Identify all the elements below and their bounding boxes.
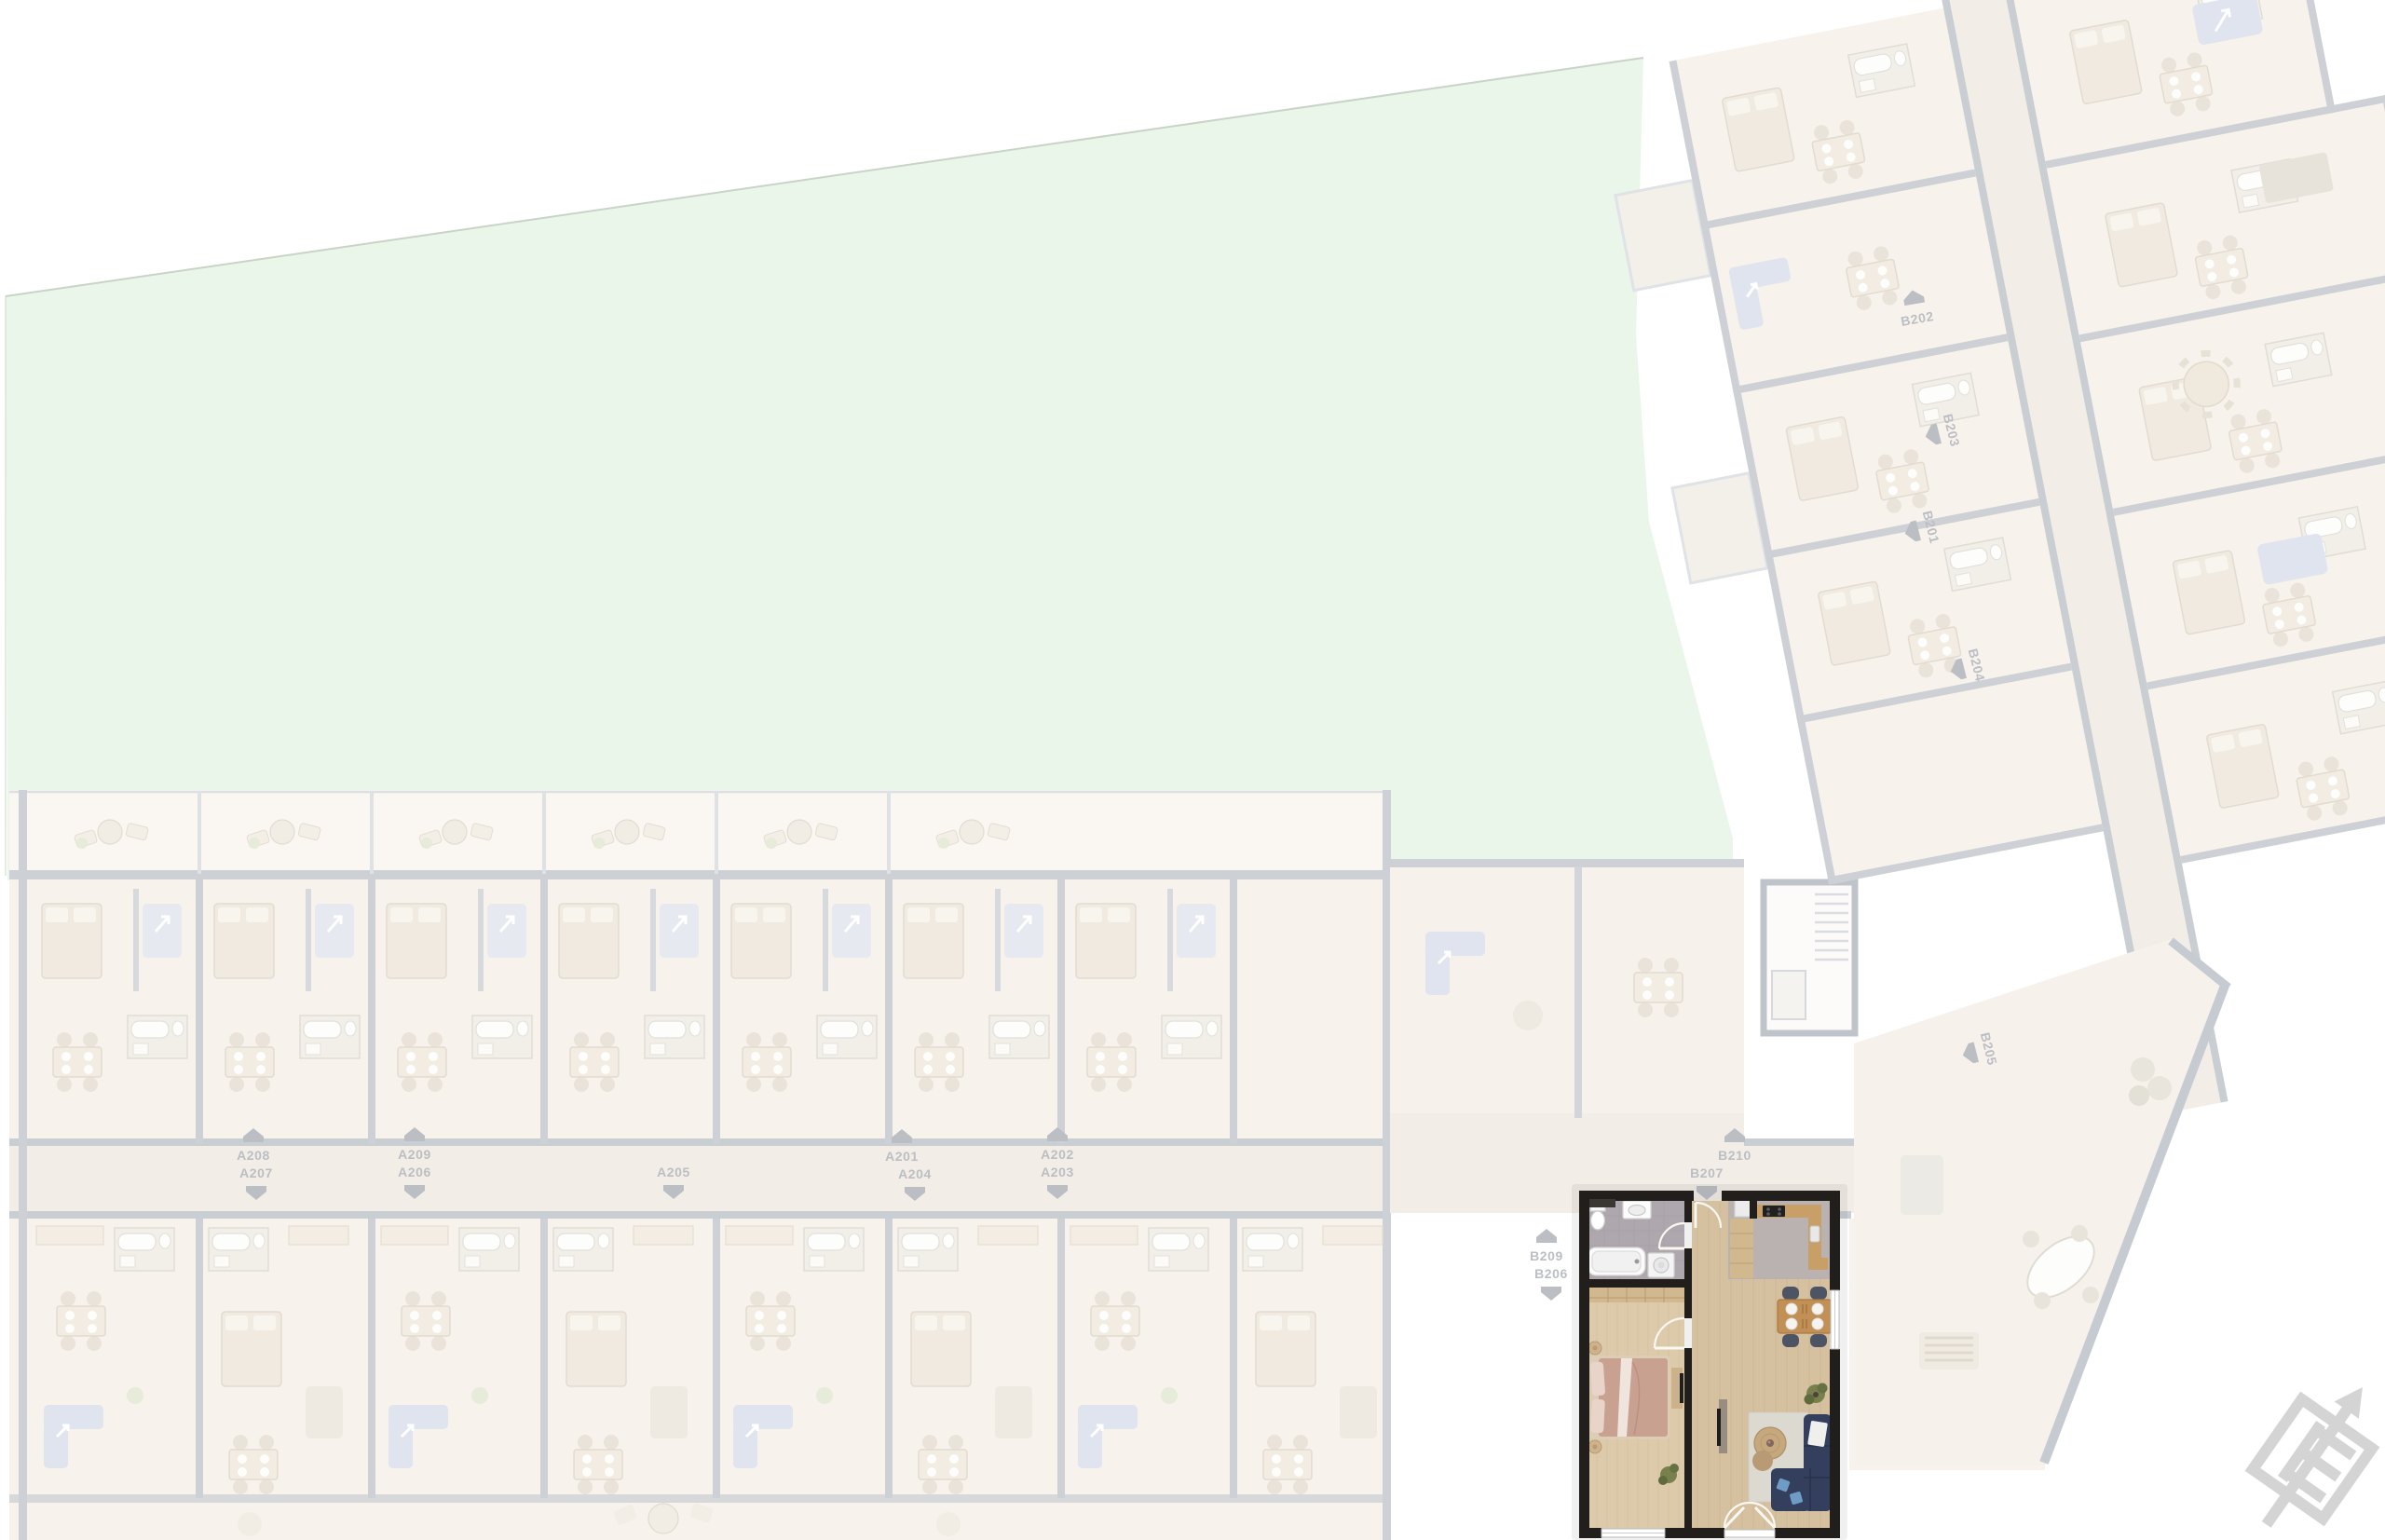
svg-text:A201: A201 (885, 1149, 919, 1164)
svg-text:A207: A207 (239, 1165, 273, 1180)
svg-text:A202: A202 (1041, 1147, 1074, 1162)
svg-text:B207: B207 (1690, 1165, 1724, 1180)
svg-text:A209: A209 (398, 1147, 431, 1162)
svg-text:A208: A208 (237, 1148, 270, 1163)
svg-text:A203: A203 (1041, 1165, 1074, 1179)
faded-bottom-wing (9, 790, 1391, 1540)
svg-text:A205: A205 (657, 1165, 690, 1179)
svg-text:A206: A206 (398, 1165, 431, 1179)
svg-text:B210: B210 (1718, 1148, 1751, 1163)
svg-text:B206: B206 (1534, 1266, 1568, 1281)
floor-plan-canvas: A208 A207 A209 A206 A205 A201 A204 A202 … (0, 0, 2385, 1540)
apartment-b207-highlighted[interactable] (1572, 1184, 1847, 1540)
page: A208 A207 A209 A206 A205 A201 A204 A202 … (0, 0, 2385, 1540)
svg-text:B209: B209 (1530, 1248, 1563, 1263)
svg-text:A204: A204 (898, 1166, 932, 1181)
